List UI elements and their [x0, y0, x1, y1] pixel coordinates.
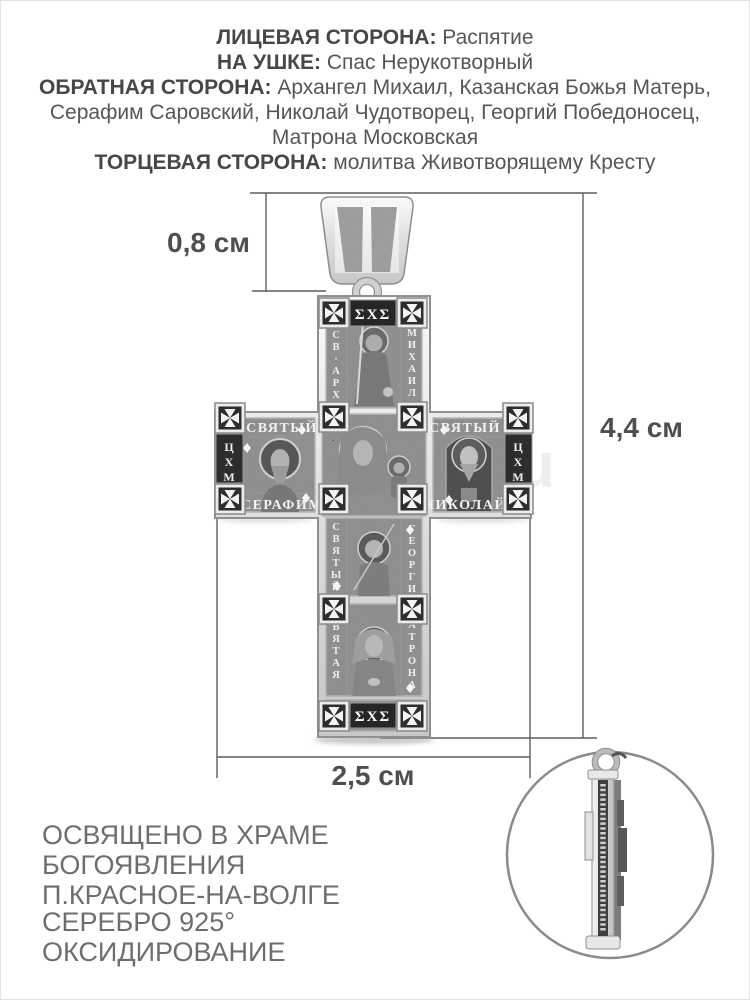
- cross-pattee-icon: [319, 484, 349, 514]
- engraving-right-arm-top: СВЯТЫЙ: [429, 419, 501, 436]
- cross-pattee-icon: [397, 484, 427, 514]
- material-line: СЕРЕБРО 925°: [42, 907, 285, 937]
- cross-pattee-icon: [319, 701, 349, 731]
- dimension-bail-height: 0,8 см: [116, 227, 250, 259]
- cross-pattee-icon: [397, 594, 427, 624]
- cross-pattee-icon: [397, 701, 427, 731]
- engraving-right-tip: ЦХМ: [511, 440, 525, 485]
- engraving-left-arm-top: СВЯТЫЙ: [246, 419, 318, 436]
- cross-pattee-icon: [319, 402, 349, 432]
- side-view-inset: [507, 748, 713, 958]
- engraving-george-left: СВЯТЫЙ: [330, 522, 342, 594]
- cross-pattee-icon: [215, 403, 245, 433]
- engraving-top-left: СВ·АРХ: [331, 330, 342, 402]
- engraving-bottom-emblem: ΣΧΣ: [355, 709, 391, 725]
- pendant-bail: [321, 197, 413, 307]
- cross-pattee-icon: [319, 298, 349, 328]
- engraving-left-arm-bottom: СЕРАФИМ: [241, 498, 323, 513]
- engraving-top-right: МИХАИЛ: [406, 328, 417, 400]
- blessing-line: П.КРАСНОЕ-НА-ВОЛГЕ: [42, 880, 340, 910]
- engraving-right-arm-bottom: НИКОЛАЙ: [423, 496, 507, 513]
- blessing-text: ОСВЯЩЕНО В ХРАМЕ БОГОЯВЛЕНИЯ П.КРАСНОЕ-Н…: [42, 820, 340, 910]
- cross-pattee-icon: [397, 298, 427, 328]
- blessing-line: ОСВЯЩЕНО В ХРАМЕ: [42, 820, 340, 850]
- engraving-left-tip: ЦХМ: [222, 440, 236, 485]
- material-line: ОКСИДИРОВАНИЕ: [42, 937, 285, 967]
- material-text: СЕРЕБРО 925° ОКСИДИРОВАНИЕ: [42, 907, 285, 967]
- engraving-top-emblem: ΣΧΣ: [355, 307, 391, 323]
- dimension-pendant-height: 4,4 см: [600, 412, 683, 444]
- cross-front: СВЯТЫЙ СЕРАФИМ СВЯТЫЙ НИКОЛАЙ СВ·АРХ МИХ…: [215, 296, 535, 737]
- engraving-george-right: ГЕОРГИ: [407, 524, 418, 596]
- cross-pattee-icon: [319, 594, 349, 624]
- dimension-pendant-width: 2,5 см: [273, 760, 473, 792]
- cross-pattee-icon: [503, 484, 533, 514]
- cross-pattee-icon: [215, 484, 245, 514]
- blessing-line: БОГОЯВЛЕНИЯ: [42, 850, 340, 880]
- cross-pattee-icon: [397, 402, 427, 432]
- product-spec-card: ЛИЦЕВАЯ СТОРОНА: Распятие НА УШКЕ: Спас …: [0, 0, 750, 1000]
- cross-pattee-icon: [503, 403, 533, 433]
